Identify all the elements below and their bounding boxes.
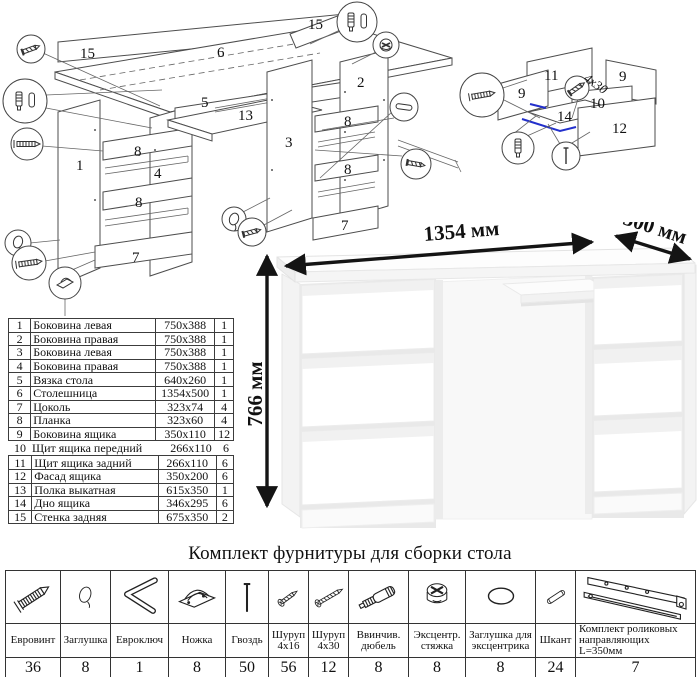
hardware-kit-table: Евровинт Заглушка Евроключ Ножка Гвоздь …	[5, 570, 696, 677]
part-label: 13	[238, 108, 253, 124]
part-side-panel-1	[58, 100, 100, 286]
hardware-name: Шкант	[536, 624, 576, 658]
table-row: 6Столешница1354x5001	[9, 386, 234, 400]
part-label: 8	[344, 114, 352, 130]
table-row: 12Фасад ящика350x2006	[9, 469, 234, 483]
hardware-name: Ввинчив. дюбель	[349, 624, 409, 658]
table-row: 2Боковина правая750x3881	[9, 332, 234, 346]
hardware-qty: 12	[309, 658, 349, 677]
table-row: 11Щит ящика задний266x1106	[9, 456, 234, 470]
hardware-name: Шуруп 4x16	[269, 624, 309, 658]
table-row: 13Полка выкатная615x3501	[9, 483, 234, 497]
hardware-qty: 8	[349, 658, 409, 677]
part-label: 7	[132, 250, 140, 266]
hardware-name: Евроключ	[111, 624, 169, 658]
part-label: 5	[201, 95, 209, 111]
part-label: 10	[590, 96, 605, 112]
depth-dimension-label: 500 мм	[620, 222, 690, 249]
hex-key-icon	[113, 572, 167, 622]
part-label: 15	[80, 46, 95, 62]
table-row: 1Боковина левая750x3881	[9, 319, 234, 333]
part-label: 1	[76, 158, 84, 174]
part-label: 6	[217, 45, 225, 61]
table-row: 8Планка323x604	[9, 414, 234, 428]
hardware-name: Комплект роликовых направляющих L=350мм	[576, 624, 696, 658]
hardware-name: Ножка	[169, 624, 226, 658]
desk-body	[277, 248, 696, 528]
right-side-panel	[684, 265, 696, 514]
hardware-icons-row	[6, 571, 696, 624]
hardware-kit-title: Комплект фурнитуры для сборки стола	[0, 543, 700, 565]
hardware-name: Гвоздь	[226, 624, 269, 658]
height-dimension-label: 766 мм	[243, 361, 267, 426]
foot-icon	[170, 572, 224, 622]
hardware-names-row: Евровинт Заглушка Евроключ Ножка Гвоздь …	[6, 624, 696, 658]
cam-cover-icon	[476, 572, 526, 622]
hardware-name: Эксцентр. стяжка	[409, 624, 466, 658]
hardware-qty: 24	[536, 658, 576, 677]
parts-list: 1Боковина левая750x3881 2Боковина правая…	[8, 318, 236, 524]
hardware-name: Заглушка	[61, 624, 111, 658]
hardware-qty: 8	[409, 658, 466, 677]
left-side-panel	[282, 274, 300, 517]
part-label: 15	[308, 17, 323, 33]
drawer-exploded-view: 11 9 9 10 14 12 4x30	[460, 48, 656, 170]
parts-table-lower: 11Щит ящика задний266x1106 12Фасад ящика…	[8, 455, 234, 524]
table-row: 7Цоколь323x744	[9, 400, 234, 414]
hardware-name: Заглушка для эксцентрика	[466, 624, 536, 658]
hardware-qty: 8	[169, 658, 226, 677]
hardware-qty-row: 36 8 1 8 50 56 12 8 8 8 24 7	[6, 658, 696, 677]
cap-icon	[65, 572, 107, 622]
part-label: 8	[134, 144, 142, 160]
part-label: 4	[154, 166, 162, 182]
table-row: 3Боковина левая750x3881	[9, 346, 234, 360]
hardware-qty: 50	[226, 658, 269, 677]
drawer-front	[302, 280, 434, 528]
table-row-unbordered: 10 Щит ящика передний 266x110 6	[8, 441, 234, 455]
part-label: 14	[557, 109, 573, 125]
hardware-qty: 1	[111, 658, 169, 677]
table-row: 15Стенка задняя675x3502	[9, 510, 234, 524]
cam-lock-icon	[414, 572, 460, 622]
drawer-slides-icon	[578, 572, 694, 622]
hardware-qty: 36	[6, 658, 61, 677]
table-row: 4Боковина правая750x3881	[9, 359, 234, 373]
width-dimension-label: 1354 мм	[423, 222, 501, 246]
hardware-qty: 8	[61, 658, 111, 677]
part-label: 11	[544, 68, 558, 84]
table-row: 9Боковина ящика350x11012	[9, 427, 234, 441]
assembly-instruction-page: 15 6 15 5 13 1 8 4 8 7 3 2 8 8 7	[0, 0, 700, 677]
part-label: 2	[357, 75, 365, 91]
part-label: 8	[135, 195, 143, 211]
hardware-name: Шуруп 4x30	[309, 624, 349, 658]
table-row: 14Дно ящика346x2956	[9, 497, 234, 511]
part-label: 3	[285, 135, 293, 151]
hardware-qty: 8	[466, 658, 536, 677]
part-label: 9	[518, 86, 526, 102]
screw-4x16-icon	[270, 572, 308, 622]
hardware-qty: 7	[576, 658, 696, 677]
kneehole-back	[436, 275, 592, 519]
drawer-front	[594, 275, 682, 514]
hardware-name: Евровинт	[6, 624, 61, 658]
part-label: 8	[344, 162, 352, 178]
parts-table-upper: 1Боковина левая750x3881 2Боковина правая…	[8, 318, 234, 441]
hardware-qty: 56	[269, 658, 309, 677]
confirmat-screw-icon	[7, 572, 59, 622]
screw-4x30-icon	[310, 572, 348, 622]
screw-dowel-icon	[351, 572, 407, 622]
part-label: 9	[619, 69, 627, 85]
nail-icon	[232, 572, 262, 622]
desk-render: 1354 мм 500 мм 766 мм	[240, 222, 700, 540]
part-label: 12	[612, 121, 627, 137]
table-row: 5Вязка стола640x2601	[9, 373, 234, 387]
dowel-icon	[537, 572, 575, 622]
